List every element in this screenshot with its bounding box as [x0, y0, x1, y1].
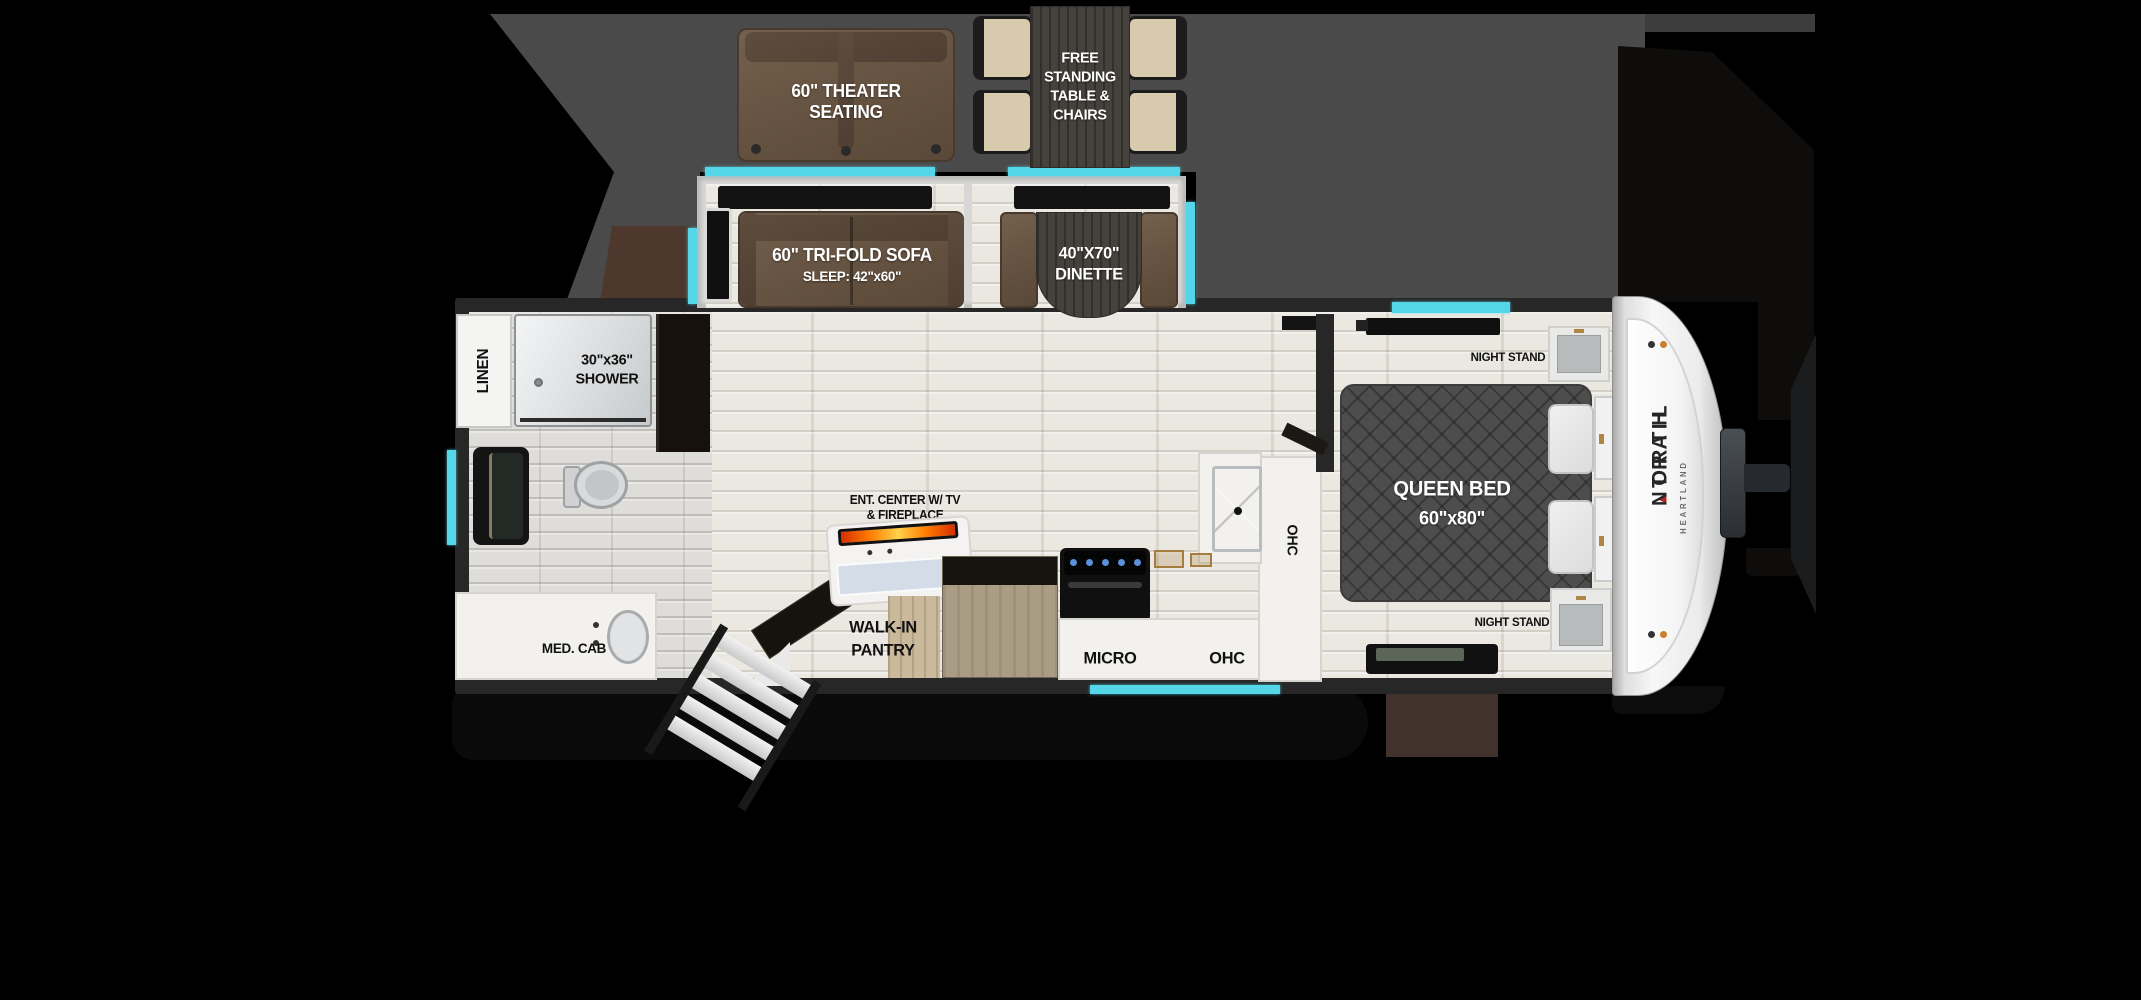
bed-pillow	[1548, 404, 1594, 474]
oven-handle	[1068, 582, 1142, 588]
dining-chair	[1127, 16, 1187, 80]
bath-window-accent	[447, 450, 456, 545]
burner	[1102, 559, 1109, 566]
theater-label-line1: 60" THEATER	[791, 82, 900, 100]
night-stand-rear-label: NIGHT STAND	[1471, 351, 1546, 363]
medicine-cabinet-mirror	[473, 447, 529, 545]
shower-door-line	[520, 418, 646, 422]
shower-drain	[534, 378, 543, 387]
fireplace-insert	[838, 521, 959, 546]
dinette-bench-left	[1000, 212, 1038, 308]
ent-knob2	[887, 549, 892, 554]
hitch-arm	[1744, 464, 1790, 492]
dinette-label-line1: 40"X70"	[1059, 245, 1120, 262]
bed-label-line2: 60"x80"	[1419, 510, 1485, 529]
dinette-bench-right	[1140, 212, 1178, 308]
shower-label-line1: 30"x36"	[581, 353, 633, 368]
backdrop-top-band	[1645, 14, 1815, 32]
theater-cupholder-center	[841, 146, 851, 156]
vanity-faucet-dot	[593, 622, 599, 628]
slide-accent-right-side	[1186, 202, 1195, 304]
theater-label-line2: SEATING	[809, 103, 883, 121]
sofa-window	[718, 186, 932, 209]
pantry-label-line2: PANTRY	[851, 642, 915, 659]
pantry-floor	[888, 596, 940, 678]
bathroom-door-panel	[656, 314, 710, 452]
bedroom-dresser-tv	[1366, 644, 1498, 674]
sofa-label-line1: 60" TRI-FOLD SOFA	[772, 246, 932, 264]
dinette-label-line2: DINETTE	[1055, 266, 1123, 283]
burner	[1070, 559, 1077, 566]
toilet-bowl	[574, 461, 628, 509]
ent-knob	[867, 550, 872, 555]
sofa-arm-right	[948, 213, 964, 306]
bedroom-tv	[1366, 318, 1500, 335]
burner	[1118, 559, 1125, 566]
bedroom-tv-mount	[1356, 320, 1368, 331]
table-label-line4: CHAIRS	[1053, 108, 1106, 123]
ent-center-label-line1: ENT. CENTER W/ TV	[850, 494, 960, 507]
cap-rivet-dark	[1648, 341, 1655, 348]
headboard-hinge	[1599, 434, 1604, 444]
cap-rivet-amber	[1660, 341, 1667, 348]
counter-trivet	[1154, 550, 1184, 568]
theater-cupholder-right	[931, 144, 941, 154]
bed-pillow	[1548, 500, 1594, 574]
night-stand-handle	[1576, 596, 1586, 600]
ohc-side-label: OHC	[1285, 524, 1300, 555]
cap-rivet-amber	[1660, 631, 1667, 638]
table-label-line3: TABLE &	[1050, 89, 1109, 104]
table-label-line1: FREE	[1061, 51, 1098, 66]
pantry-cabinet	[942, 556, 1058, 678]
underbody-bar	[452, 684, 1368, 760]
micro-label: MICRO	[1084, 650, 1137, 667]
dresser-tv-screen	[1376, 648, 1464, 661]
kitchen-side-cabinet	[1258, 456, 1322, 682]
mirror-glass	[489, 453, 523, 539]
pantry-label-line1: WALK-IN	[849, 619, 917, 636]
toilet-lid	[585, 470, 619, 500]
bedroom-front-window-accent	[1392, 302, 1510, 313]
cap-rivet-dark	[1648, 631, 1655, 638]
dining-chair	[973, 90, 1033, 154]
slide-side-window	[704, 208, 732, 302]
slide-awning-accent-left	[705, 167, 935, 176]
hitch-plate	[1720, 428, 1746, 538]
brand-manufacturer: HEARTLAND	[1680, 460, 1688, 534]
slide-accent-left-side	[688, 228, 697, 304]
night-stand-front	[1550, 588, 1612, 652]
dining-chair	[1127, 90, 1187, 154]
shower-label-line2: SHOWER	[575, 372, 638, 387]
headboard-hinge	[1599, 536, 1604, 546]
brand-word-trail: TRAIL	[1650, 400, 1671, 488]
sofa-arm-left	[740, 213, 756, 306]
linen-label: LINEN	[476, 349, 492, 394]
night-stand-panel	[1559, 604, 1603, 646]
dinette-window	[1014, 186, 1170, 209]
pantry-counter-edge	[943, 557, 1057, 585]
burner	[1086, 559, 1093, 566]
kitchen-sink	[1212, 466, 1262, 552]
sofa-label-line2: SLEEP: 42"x60"	[803, 269, 901, 283]
med-cab-label: MED. CAB	[542, 641, 606, 655]
ohc-base-label: OHC	[1209, 650, 1244, 667]
kitchen-wall-window-accent	[1090, 685, 1280, 694]
vanity-counter	[455, 592, 657, 680]
table-label-line2: STANDING	[1044, 70, 1116, 85]
burner	[1134, 559, 1141, 566]
slide-awning-accent-right	[1008, 167, 1180, 176]
range-stove	[1060, 548, 1150, 622]
sink-faucet	[1234, 507, 1242, 515]
floorplan-canvas: 60" TRI-FOLD SOFA SLEEP: 42"x60" 40"X70"…	[0, 0, 2141, 1000]
night-stand-front-label: NIGHT STAND	[1475, 616, 1550, 628]
kitchen-soffit	[1282, 316, 1318, 330]
night-stand-handle	[1574, 329, 1584, 333]
night-stand-panel	[1557, 335, 1601, 373]
dining-chair	[973, 16, 1033, 80]
brand-logo: NORTH▲TRAIL	[1650, 488, 1671, 506]
night-stand-rear	[1548, 326, 1610, 382]
bed-label-line1: QUEEN BED	[1393, 479, 1510, 500]
counter-trivet	[1190, 553, 1212, 567]
vanity-sink-basin	[607, 610, 649, 664]
theater-cupholder-left	[751, 144, 761, 154]
